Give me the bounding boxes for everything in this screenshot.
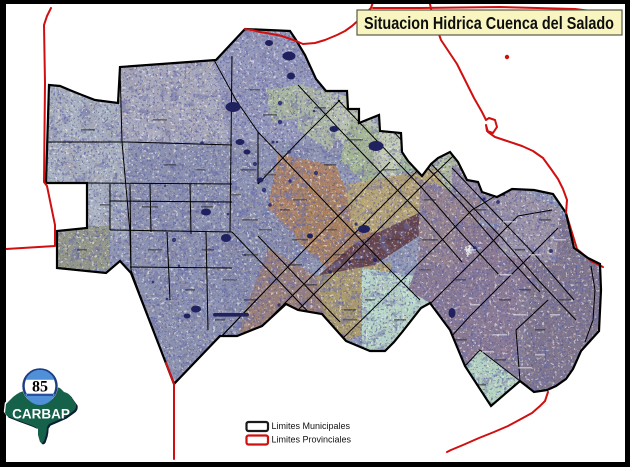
svg-text:85: 85: [32, 379, 48, 396]
svg-text:Situacion Hidrica Cuenca del S: Situacion Hidrica Cuenca del Salado: [364, 13, 614, 33]
svg-text:Limites Municipales: Limites Municipales: [272, 421, 351, 431]
svg-text:Limites Provinciales: Limites Provinciales: [272, 435, 352, 445]
svg-text:CARBAP: CARBAP: [12, 407, 70, 422]
